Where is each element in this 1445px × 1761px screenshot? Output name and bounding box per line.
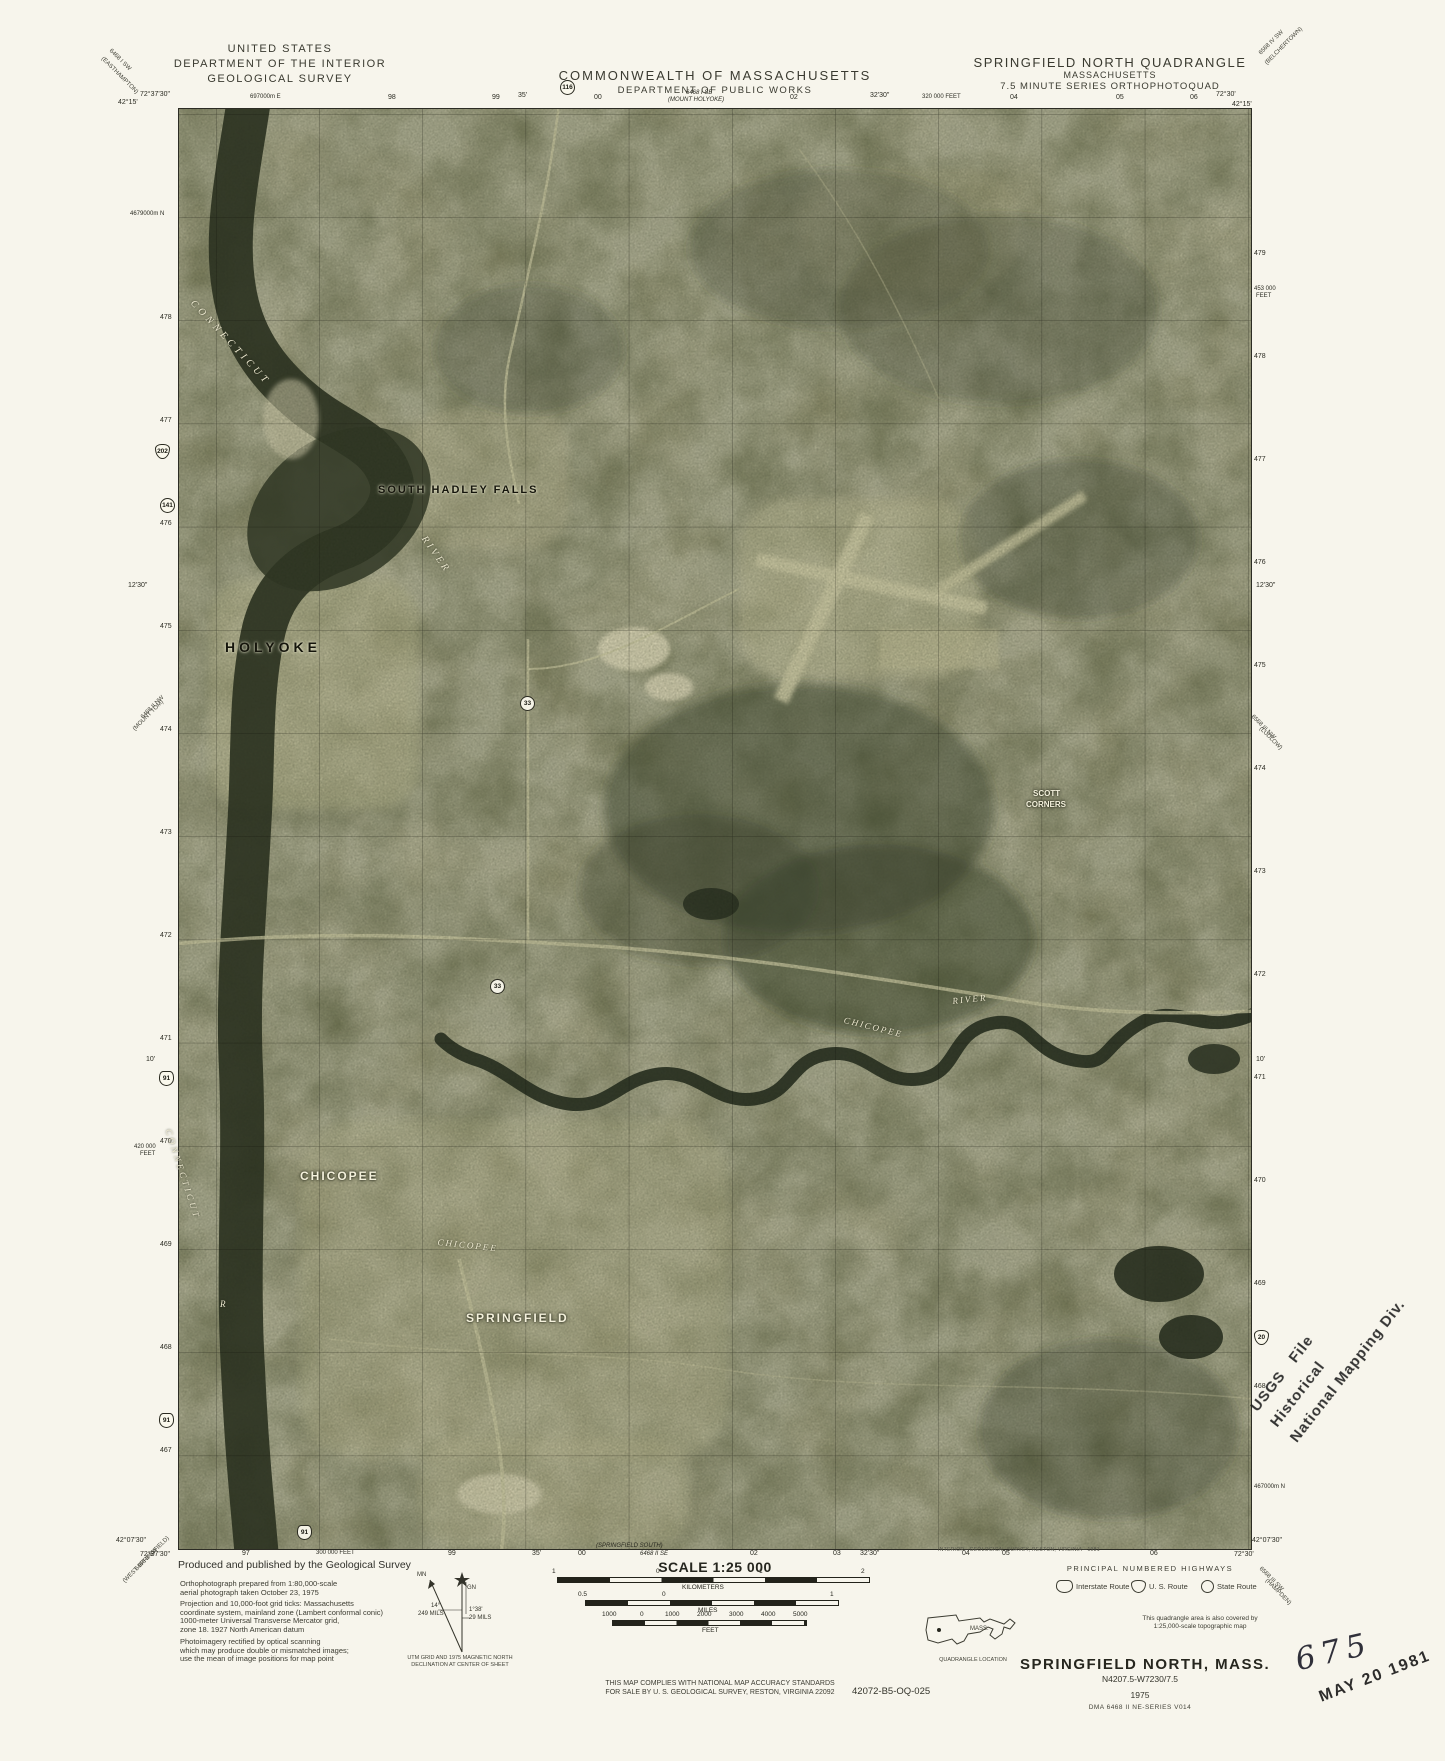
- edge-label: 42°07'30": [1252, 1537, 1282, 1545]
- edge-label: 14°: [431, 1603, 440, 1610]
- highway-legend-title: PRINCIPAL NUMBERED HIGHWAYS: [1040, 1564, 1260, 1573]
- projection-note: Projection and 10,000-foot grid ticks: M…: [180, 1600, 383, 1634]
- scale-bar-feet: [612, 1620, 807, 1626]
- edge-label: 1: [759, 1568, 763, 1575]
- edge-label: 04: [962, 1550, 970, 1558]
- edge-label: 6468 II SE: [640, 1551, 668, 1558]
- edge-label: 300 000 FEET: [316, 1550, 355, 1557]
- edge-label: 320 000 FEET: [922, 94, 961, 101]
- edge-label: 32'30": [860, 1550, 879, 1558]
- edge-label: 471: [1254, 1074, 1266, 1082]
- legend-label: Interstate Route: [1076, 1582, 1129, 1591]
- edge-label: 29 MILS: [469, 1615, 491, 1622]
- place-label: CORNERS: [1026, 801, 1066, 810]
- interstate-route-shield-icon: 91: [159, 1413, 174, 1428]
- state-route-shield-icon: 116: [560, 80, 575, 95]
- legend-label: State Route: [1217, 1582, 1257, 1591]
- edge-label: 468: [160, 1344, 172, 1352]
- edge-label: FEET: [702, 1627, 719, 1634]
- edge-label: MN: [417, 1572, 426, 1579]
- edge-label: 03: [833, 1550, 841, 1558]
- edge-label: 35': [532, 1550, 541, 1558]
- edge-label: 0: [662, 1591, 666, 1598]
- scale-bar-kilometers: [557, 1577, 870, 1583]
- catalog-number: 42072-B5-OQ-025: [852, 1686, 930, 1697]
- state-route-shield-icon: 141: [160, 498, 175, 513]
- state-route-symbol-icon: [1201, 1580, 1214, 1593]
- interstate-route-shield-icon: 91: [159, 1071, 174, 1086]
- quadrangle-state: MASSACHUSETTS: [960, 70, 1260, 80]
- edge-label: 453 000: [1254, 286, 1276, 293]
- state-header-line2: DEPARTMENT OF PUBLIC WORKS: [520, 85, 910, 96]
- edge-label: 478: [1254, 353, 1266, 361]
- interstate-route-symbol-icon: [1056, 1580, 1073, 1593]
- place-label: SCOTT: [1033, 790, 1060, 799]
- quad-location-dot: [937, 1628, 941, 1632]
- place-label: SPRINGFIELD: [466, 1312, 569, 1325]
- state-route-shield-icon: 33: [490, 979, 505, 994]
- map-sheet: UNITED STATES DEPARTMENT OF THE INTERIOR…: [0, 0, 1445, 1761]
- edge-label: GN: [467, 1585, 476, 1592]
- place-label: HOLYOKE: [225, 640, 321, 655]
- mass-abbrev-label: MASS.: [970, 1626, 989, 1632]
- place-label: SOUTH HADLEY FALLS: [378, 484, 538, 496]
- edge-label: 467: [160, 1447, 172, 1455]
- edge-label: 697000m E: [250, 94, 281, 101]
- edge-label: 10': [1256, 1056, 1265, 1064]
- scale-bar-miles: [585, 1600, 839, 1606]
- edge-label: 72°30': [1216, 91, 1236, 99]
- edge-label: 4000: [761, 1611, 775, 1618]
- magnetic-north-arrow-icon: [428, 1580, 435, 1589]
- edge-label: 420 000: [134, 1144, 156, 1151]
- quad-location-caption: QUADRANGLE LOCATION: [918, 1657, 1028, 1663]
- edge-label: 06: [1150, 1550, 1158, 1558]
- place-label: CHICOPEE: [300, 1170, 379, 1183]
- edge-label: 00: [594, 94, 602, 102]
- produced-note-title: Produced and published by the Geological…: [178, 1561, 411, 1570]
- edge-label: 12'30": [1256, 582, 1275, 590]
- edge-label: 10': [146, 1056, 155, 1064]
- edge-label: 42°07'30": [116, 1537, 146, 1545]
- edge-label: 477: [1254, 456, 1266, 464]
- edge-label: 474: [160, 726, 172, 734]
- edge-label: 06: [1190, 94, 1198, 102]
- edge-label: 477: [160, 417, 172, 425]
- edge-label: 1: [830, 1591, 834, 1598]
- edge-label: 469: [160, 1241, 172, 1249]
- declination-caption: UTM GRID AND 1975 MAGNETIC NORTH DECLINA…: [385, 1655, 535, 1669]
- edge-label: 474: [1254, 765, 1266, 773]
- massachusetts-outline-icon: MASS.: [922, 1608, 1022, 1656]
- quadrangle-title: SPRINGFIELD NORTH QUADRANGLE: [960, 55, 1260, 70]
- edge-label: 2: [861, 1568, 865, 1575]
- sheet-code: N4207.5-W7230/7.5: [1020, 1674, 1260, 1684]
- edge-label: KILOMETERS: [682, 1584, 724, 1591]
- edge-label: 00: [578, 1550, 586, 1558]
- edge-label: 470: [1254, 1177, 1266, 1185]
- edge-label: 0.5: [578, 1591, 587, 1598]
- edge-label: 0: [656, 1568, 660, 1575]
- edge-label: 05: [1116, 94, 1124, 102]
- edge-label: 42°15': [118, 99, 138, 107]
- edge-label: FEET: [1256, 293, 1271, 300]
- edge-label: 4679000m N: [130, 211, 164, 218]
- edge-label: 5000: [793, 1611, 807, 1618]
- sheet-dma-series: DMA 6468 II NE-SERIES V014: [1020, 1704, 1260, 1711]
- edge-label: (MOUNT HOLYOKE): [668, 97, 724, 104]
- map-photo: [179, 109, 1251, 1549]
- accession-number-handwritten: 675: [1292, 1626, 1375, 1678]
- edge-label: 468: [1254, 1383, 1266, 1391]
- sheet-title: SPRINGFIELD NORTH, MASS.: [1020, 1656, 1260, 1673]
- legend-label: U. S. Route: [1149, 1582, 1188, 1591]
- sheet-year: 1975: [1020, 1690, 1260, 1700]
- edge-label: FEET: [140, 1151, 155, 1158]
- usgs-historical-file-stamp: USGS File Historical National Mapping Di…: [1244, 1213, 1445, 1448]
- state-route-shield-icon: 33: [520, 696, 535, 711]
- edge-label: 249 MILS: [418, 1611, 444, 1618]
- edge-label: 32'30": [870, 92, 889, 100]
- water-label: R: [220, 1300, 226, 1310]
- utm-grid-overlay: [179, 109, 1251, 1549]
- edge-label: 0: [640, 1611, 644, 1618]
- covered-note: This quadrangle area is also covered by …: [1120, 1615, 1280, 1631]
- us-route-symbol-icon: [1131, 1580, 1146, 1593]
- edge-label: 99: [448, 1550, 456, 1558]
- edge-label: 471: [160, 1035, 172, 1043]
- edge-label: 04: [1010, 94, 1018, 102]
- edge-label: 473: [160, 829, 172, 837]
- legend-item: Interstate Route: [1056, 1580, 1129, 1593]
- edge-label: 472: [1254, 971, 1266, 979]
- quadrangle-series: 7.5 MINUTE SERIES ORTHOPHOTOQUAD: [960, 81, 1260, 92]
- edge-label: 97: [242, 1550, 250, 1558]
- state-header-line1: COMMONWEALTH OF MASSACHUSETTS: [520, 68, 910, 83]
- edge-label: 42°15': [1232, 101, 1252, 109]
- edge-label: 72°30': [1234, 1551, 1254, 1559]
- legend-item: State Route: [1201, 1580, 1257, 1593]
- edge-label: 479: [1254, 250, 1266, 258]
- edge-label: 475: [160, 623, 172, 631]
- edge-label: 3000: [729, 1611, 743, 1618]
- edge-label: 475: [1254, 662, 1266, 670]
- edge-label: (SPRINGFIELD SOUTH): [596, 1543, 663, 1550]
- us-route-shield-icon: 20: [1254, 1330, 1269, 1345]
- legend-item: U. S. Route: [1131, 1580, 1188, 1593]
- edge-label: 02: [750, 1550, 758, 1558]
- photoimagery-note: Photoimagery rectified by optical scanni…: [180, 1638, 349, 1664]
- ortho-note: Orthophotograph prepared from 1:80,000-s…: [180, 1580, 337, 1597]
- edge-label: 467000m N: [1254, 1484, 1285, 1491]
- edge-label: 478: [160, 314, 172, 322]
- edge-label: 476: [1254, 559, 1266, 567]
- edge-label: 1°38': [469, 1607, 483, 1614]
- edge-label: 472: [160, 932, 172, 940]
- edge-label: 99: [492, 94, 500, 102]
- orthophoto-map: [178, 108, 1252, 1550]
- edge-label: 05: [1002, 1550, 1010, 1558]
- edge-label: 476: [160, 520, 172, 528]
- edge-label: 1000: [602, 1611, 616, 1618]
- edge-label: 02: [790, 94, 798, 102]
- edge-label: 473: [1254, 868, 1266, 876]
- edge-label: 6468 I SE: [686, 90, 712, 97]
- edge-label: 12'30": [128, 582, 147, 590]
- edge-label: 98: [388, 94, 396, 102]
- edge-label: 72°37'30": [140, 91, 170, 99]
- us-route-shield-icon: 202: [155, 444, 170, 459]
- edge-label: 1: [552, 1568, 556, 1575]
- edge-label: 2000: [697, 1611, 711, 1618]
- edge-label: 1000: [665, 1611, 679, 1618]
- edge-label: 35': [518, 92, 527, 100]
- edge-label: 469: [1254, 1280, 1266, 1288]
- interstate-route-shield-icon: 91: [297, 1525, 312, 1540]
- agency-header: UNITED STATES DEPARTMENT OF THE INTERIOR…: [120, 42, 440, 87]
